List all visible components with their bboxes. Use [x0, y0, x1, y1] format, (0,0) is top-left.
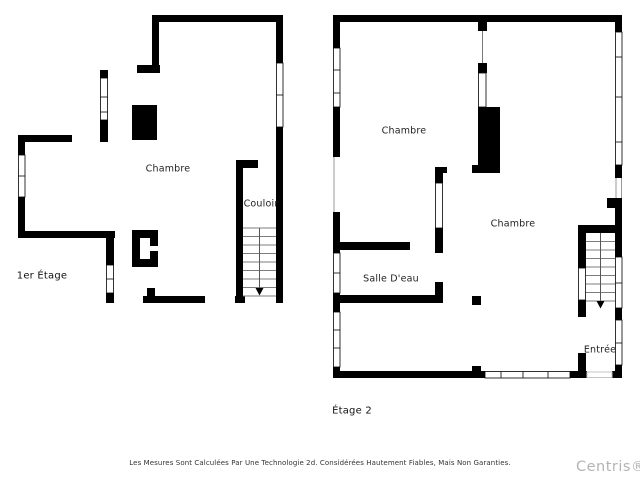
floor-plan-page: Chambre Couloir 1er Étage Chambre Chambr… — [0, 0, 640, 480]
room-label-entree: Entrée — [584, 345, 616, 356]
floor2-walls — [333, 15, 622, 378]
floor2-staircase — [586, 233, 615, 301]
centris-logo: Centris® — [576, 459, 640, 475]
floor2-chimney — [478, 107, 500, 165]
floor1-staircase — [243, 228, 276, 296]
floor1-chimney — [132, 105, 157, 140]
floor2-title: Étage 2 — [332, 406, 372, 417]
floor1-title: 1er Étage — [17, 271, 67, 282]
floor1-walls — [18, 15, 283, 303]
floor2-openings — [334, 31, 622, 378]
room-label-couloir: Couloir — [244, 199, 279, 210]
floor2-stair-direction-arrow — [597, 301, 605, 309]
measurement-disclaimer: Les Mesures Sont Calculées Par Une Techn… — [129, 459, 510, 467]
room-label-chambre-right-floor2: Chambre — [491, 219, 536, 230]
floor2-windows — [334, 32, 623, 378]
floor1-stair-direction-arrow — [256, 288, 264, 296]
room-label-chambre-top-floor2: Chambre — [382, 126, 427, 137]
room-label-chambre-floor1: Chambre — [146, 164, 191, 175]
floor-plan-drawing — [0, 0, 640, 480]
room-label-salle-deau: Salle D'eau — [363, 274, 419, 285]
